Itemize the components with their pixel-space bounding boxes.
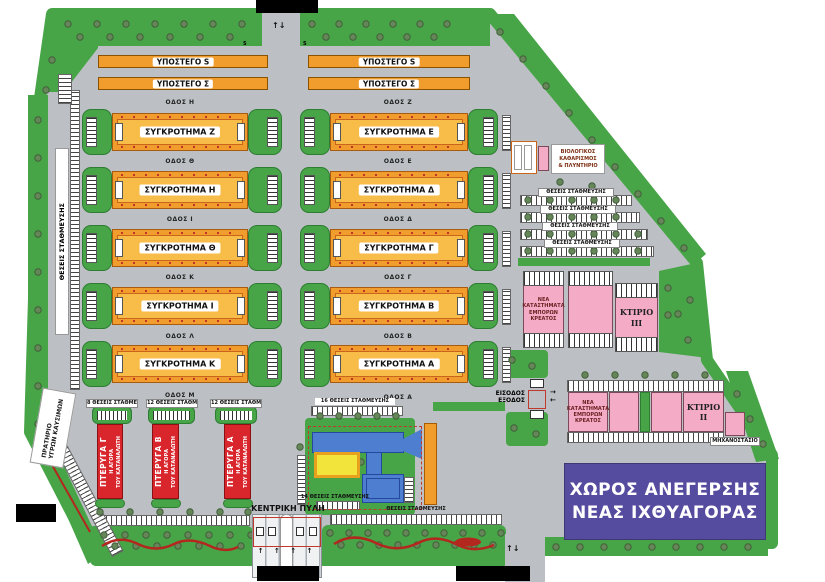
- road-label-odos-m: ΟΔΟΣ Μ: [130, 392, 230, 399]
- wing-subtitle: Η ΑΓΟΡΑ: [236, 449, 242, 474]
- door-slot: [115, 181, 123, 199]
- redaction-box-left: [16, 504, 56, 522]
- wing-subtitle: ΤΟΥ ΚΑΤΑΝΑΛΩΤΗ: [116, 436, 122, 488]
- wing-parking-label: 12 ΘΕΣΕΙΣ ΣΤΑΘΜΕΥΣΗΣ: [210, 399, 262, 408]
- shed-label: ΥΠΟΣΤΕΓΟ S: [153, 57, 214, 66]
- parking-endblock: [248, 167, 282, 213]
- ktirio-2-label: ΚΤΙΡΙΟ II: [687, 402, 720, 423]
- door-slot: [333, 123, 341, 141]
- road-label-odos-h: ΟΔΟΣ Η: [130, 99, 230, 106]
- building-sygkrotima-alpha: ΣΥΓΚΡΟΤΗΜΑ Α: [330, 345, 468, 383]
- building-label: ΣΥΓΚΡΟΤΗΜΑ Δ: [359, 185, 440, 196]
- bio-treatment-labelbox: ΒΙΟΛΟΓΙΚΟΣ ΚΑΘΑΡΙΣΜΟΣ & ΠΛΥΝΤΗΡΙΟ: [551, 144, 605, 174]
- gate-booth: [309, 527, 317, 536]
- building-sygkrotima-iota: ΣΥΓΚΡΟΤΗΜΑ Ι: [112, 287, 248, 325]
- wing-subtitle: ΤΟΥ ΚΑΤΑΝΑΛΩΤΗ: [243, 436, 249, 488]
- wing-pteryga-beta: ΠΤΕΡΥΓΑ Β Η ΑΓΟΡΑ ΤΟΥ ΚΑΤΑΝΑΛΩΤΗ: [152, 424, 179, 499]
- gate-booth: [256, 527, 264, 536]
- bio-treatment-text: ΒΙΟΛΟΓΙΚΟΣ ΚΑΘΑΡΙΣΜΟΣ & ΠΛΥΝΤΗΡΙΟ: [558, 149, 597, 170]
- wing-name: ΠΤΕΡΥΓΑ Β: [154, 436, 163, 487]
- parking-endblock: [468, 167, 498, 213]
- gate-booth: [268, 527, 276, 536]
- hedge-blob: [455, 538, 481, 547]
- building-sygkrotima-epsilon: ΣΥΓΚΡΟΤΗΜΑ Ε: [330, 113, 468, 151]
- center-parking-label-bottom: 14 ΘΕΣΕΙΣ ΣΤΑΘΜΕΥΣΗΣ: [300, 494, 370, 501]
- meat-shops-building-3b: [568, 271, 613, 348]
- meat-shops-label: ΝΕΑ ΚΑΤΑΣΤΗΜΑΤΑ ΕΜΠΟΡΩΝ ΚΡΕΑΤΟΣ: [567, 400, 609, 425]
- shed-ypostego-s-right: ΥΠΟΣΤΕΓΟ S: [308, 55, 470, 68]
- building-ktirio-3: ΚΤΙΡΙΟ III: [615, 283, 658, 352]
- door-slot: [333, 355, 341, 373]
- building-ktirio-2: ΚΤΙΡΙΟ II: [683, 392, 724, 432]
- road-label-odos-th: ΟΔΟΣ Θ: [130, 158, 230, 165]
- s-marker-left: S: [243, 41, 247, 47]
- parking-endblock: [468, 341, 498, 387]
- gate-booth: [296, 527, 304, 536]
- meat-shops-building-2c: [651, 392, 682, 432]
- door-slot: [333, 239, 341, 257]
- shed-label: ΥΠΟΣΤΕΓΟ Σ: [359, 79, 419, 88]
- wing-cap: [151, 499, 181, 508]
- parking-endblock: [300, 283, 330, 329]
- door-slot: [115, 355, 123, 373]
- building-label: ΣΥΓΚΡΟΤΗΜΑ Η: [139, 185, 220, 196]
- redaction-box-bottom-left: [257, 566, 319, 581]
- door-slot: [333, 181, 341, 199]
- building-label: ΣΥΓΚΡΟΤΗΜΑ Γ: [359, 243, 438, 254]
- road-label-odos-z: ΟΔΟΣ Ζ: [348, 99, 448, 106]
- group2-green-gap: [640, 392, 650, 432]
- door-slot: [115, 123, 123, 141]
- building-sygkrotima-gamma: ΣΥΓΚΡΟΤΗΜΑ Γ: [330, 229, 468, 267]
- right-parking-row-label: ΘΕΣΕΙΣ ΣΤΑΘΜΕΥΣΗΣ: [540, 205, 616, 214]
- wing-cap: [95, 499, 125, 508]
- building-label: ΣΥΓΚΡΟΤΗΜΑ Ε: [359, 127, 439, 138]
- wing-subtitle: ΤΟΥ ΚΑΤΑΝΑΛΩΤΗ: [171, 436, 177, 488]
- bio-tank: [514, 145, 522, 170]
- redaction-box-bottom-right: [456, 566, 530, 581]
- fuel-station-text: ΠΡΑΤΗΡΙΟ ΥΓΡΩΝ ΚΑΥΣΙΜΩΝ: [41, 397, 65, 459]
- right-parking-row-label: ΘΕΣΕΙΣ ΣΤΑΘΜΕΥΣΗΣ: [544, 239, 620, 248]
- wing-name: ΠΤΕΡΥΓΑ Γ: [99, 437, 108, 487]
- wing-name: ΠΤΕΡΥΓΑ Α: [226, 436, 235, 487]
- wing-cap-parking: [148, 406, 195, 424]
- building-label: ΣΥΓΚΡΟΤΗΜΑ Ζ: [140, 127, 220, 138]
- wing-pteryga-alpha: ΠΤΕΡΥΓΑ Α Η ΑΓΟΡΑ ΤΟΥ ΚΑΤΑΝΑΛΩΤΗ: [224, 424, 251, 499]
- wing-cap-parking: [92, 406, 132, 424]
- wing-parking-label: 8 ΘΕΣΕΙΣ ΣΤΑΘΜΕΥΣΗΣ: [86, 399, 138, 408]
- fish-market-notice: ΧΩΡΟΣ ΑΝΕΓΕΡΣΗΣ ΝΕΑΣ ΙΧΘΥΑΓΟΡΑΣ: [564, 463, 766, 540]
- door-slot: [115, 239, 123, 257]
- parking-endblock: [468, 225, 498, 271]
- parking-endblock: [468, 283, 498, 329]
- entrance-red-outline: [528, 390, 546, 409]
- parking-endblock: [82, 167, 112, 213]
- entrance-booth-north: [530, 379, 544, 388]
- road-label-odos-l: ΟΔΟΣ Λ: [130, 333, 230, 340]
- entrance-arrow-out: ←: [550, 397, 556, 404]
- building-sygkrotima-kappa: ΣΥΓΚΡΟΤΗΜΑ Κ: [112, 345, 248, 383]
- parking-endblock: [468, 109, 498, 155]
- door-slot: [457, 181, 465, 199]
- wing-parking-label: 12 ΘΕΣΕΙΣ ΣΤΑΘΜΕΥΣΗΣ: [146, 399, 198, 408]
- parking-endblock: [82, 109, 112, 155]
- left-parking-strip-label: ΘΕΣΕΙΣ ΣΤΑΘΜΕΥΣΗΣ: [55, 148, 69, 335]
- entrance-arrow-in: →: [550, 389, 556, 396]
- north-gate-arrows: ↑↓: [272, 22, 285, 30]
- central-gate-label: ΚΕΝΤΡΙΚΗ ΠΥΛΗ: [240, 504, 336, 513]
- wing-subtitle: Η ΑΓΟΡΑ: [164, 449, 170, 474]
- door-slot: [237, 355, 245, 373]
- shed-label: ΥΠΟΣΤΕΓΟ Σ: [153, 79, 213, 88]
- building-sygkrotima-theta: ΣΥΓΚΡΟΤΗΜΑ Θ: [112, 229, 248, 267]
- meat-shops-building-2a: ΝΕΑ ΚΑΤΑΣΤΗΜΑΤΑ ΕΜΠΟΡΩΝ ΚΡΕΑΤΟΣ: [568, 392, 608, 432]
- machine-room-label: ΜΗΧΑΝΟΣΤΑΣΙΟ: [710, 437, 760, 446]
- building-label: ΣΥΓΚΡΟΤΗΜΑ Κ: [140, 359, 221, 370]
- door-slot: [237, 123, 245, 141]
- parking-endblock: [82, 341, 112, 387]
- right-parking-row-label: ΘΕΣΕΙΣ ΣΤΑΘΜΕΥΣΗΣ: [538, 188, 614, 197]
- door-slot: [457, 355, 465, 373]
- site-plan: ↑↓ S S ΥΠΟΣΤΕΓΟ S ΥΠΟΣΤΕΓΟ Σ ΥΠΟΣΤΕΓΟ S …: [0, 0, 825, 582]
- parking-endblock: [248, 225, 282, 271]
- building-sygkrotima-z: ΣΥΓΚΡΟΤΗΜΑ Ζ: [112, 113, 248, 151]
- bottom-parking-label: ΘΕΣΕΙΣ ΣΤΑΘΜΕΥΣΗΣ: [368, 506, 464, 513]
- door-slot: [237, 181, 245, 199]
- meat-shops-label: ΝΕΑ ΚΑΤΑΣΤΗΜΑΤΑ ΕΜΠΟΡΩΝ ΚΡΕΑΤΟΣ: [522, 297, 564, 322]
- road-label-odos-k: ΟΔΟΣ Κ: [130, 274, 230, 281]
- building-label: ΣΥΓΚΡΟΤΗΜΑ Θ: [139, 243, 220, 254]
- bio-building: [538, 146, 549, 171]
- s-marker-right: S: [303, 41, 307, 47]
- road-label-odos-d: ΟΔΟΣ Δ: [348, 216, 448, 223]
- building-label: ΣΥΓΚΡΟΤΗΜΑ Α: [359, 359, 440, 370]
- road-label-odos-g: ΟΔΟΣ Γ: [348, 274, 448, 281]
- shed-ypostego-sigma-right: ΥΠΟΣΤΕΓΟ Σ: [308, 77, 470, 90]
- wing-subtitle: Η ΑΓΟΡΑ: [109, 449, 115, 474]
- building-sygkrotima-beta: ΣΥΓΚΡΟΤΗΜΑ Β: [330, 287, 468, 325]
- door-slot: [237, 297, 245, 315]
- parking-endblock: [248, 109, 282, 155]
- parking-endblock: [248, 341, 282, 387]
- shed-ypostego-sigma-left: ΥΠΟΣΤΕΓΟ Σ: [98, 77, 268, 90]
- ktirio-3-label: ΚΤΙΡΙΟ III: [620, 307, 653, 328]
- meat-shops-building-3a: ΝΕΑ ΚΑΤΑΣΤΗΜΑΤΑ ΕΜΠΟΡΩΝ ΚΡΕΑΤΟΣ: [523, 271, 564, 348]
- gate-lane-arrows: ↑ ↑ ↑ ↑: [252, 548, 322, 555]
- building-label: ΣΥΓΚΡΟΤΗΜΑ Β: [359, 301, 439, 312]
- parking-endblock: [82, 283, 112, 329]
- shed-label: ΥΠΟΣΤΕΓΟ S: [359, 57, 420, 66]
- entrance-exit-label: ΕΙΣΟΔΟΣ ΕΞΟΔΟΣ: [480, 390, 525, 404]
- parking-endblock: [82, 225, 112, 271]
- road-label-odos-i: ΟΔΟΣ Ι: [130, 216, 230, 223]
- parking-endblock: [300, 109, 330, 155]
- machine-room-building: [725, 412, 745, 436]
- left-parking-strip-text: ΘΕΣΕΙΣ ΣΤΑΘΜΕΥΣΗΣ: [58, 203, 66, 280]
- wing-pteryga-gamma: ΠΤΕΡΥΓΑ Γ Η ΑΓΟΡΑ ΤΟΥ ΚΑΤΑΝΑΛΩΤΗ: [97, 424, 123, 499]
- parking-endblock: [248, 283, 282, 329]
- parking-endblock: [300, 225, 330, 271]
- building-label: ΣΥΓΚΡΟΤΗΜΑ Ι: [141, 301, 218, 312]
- wing-cap-parking: [215, 406, 257, 424]
- door-slot: [333, 297, 341, 315]
- door-slot: [457, 123, 465, 141]
- shed-ypostego-s-left: ΥΠΟΣΤΕΓΟ S: [98, 55, 268, 68]
- orange-strip-building: [424, 423, 437, 505]
- exit-road-arrows: ↑↓: [506, 545, 519, 553]
- road-label-odos-b: ΟΔΟΣ Β: [348, 333, 448, 340]
- door-slot: [457, 297, 465, 315]
- meat-shops-building-2b: [609, 392, 639, 432]
- door-slot: [115, 297, 123, 315]
- right-parking-row-label: ΘΕΣΕΙΣ ΣΤΑΘΜΕΥΣΗΣ: [542, 222, 618, 231]
- door-slot: [237, 239, 245, 257]
- road-label-odos-e: ΟΔΟΣ Ε: [348, 158, 448, 165]
- door-slot: [457, 239, 465, 257]
- building-sygkrotima-eta: ΣΥΓΚΡΟΤΗΜΑ Η: [112, 171, 248, 209]
- redaction-box-top: [256, 0, 318, 13]
- center-parking-label-top: 16 ΘΕΣΕΙΣ ΣΤΑΘΜΕΥΣΗΣ: [315, 398, 395, 405]
- entrance-booth-south: [530, 410, 544, 419]
- parking-endblock: [300, 341, 330, 387]
- building-sygkrotima-delta: ΣΥΓΚΡΟΤΗΜΑ Δ: [330, 171, 468, 209]
- bio-tank: [524, 145, 532, 170]
- parking-endblock: [300, 167, 330, 213]
